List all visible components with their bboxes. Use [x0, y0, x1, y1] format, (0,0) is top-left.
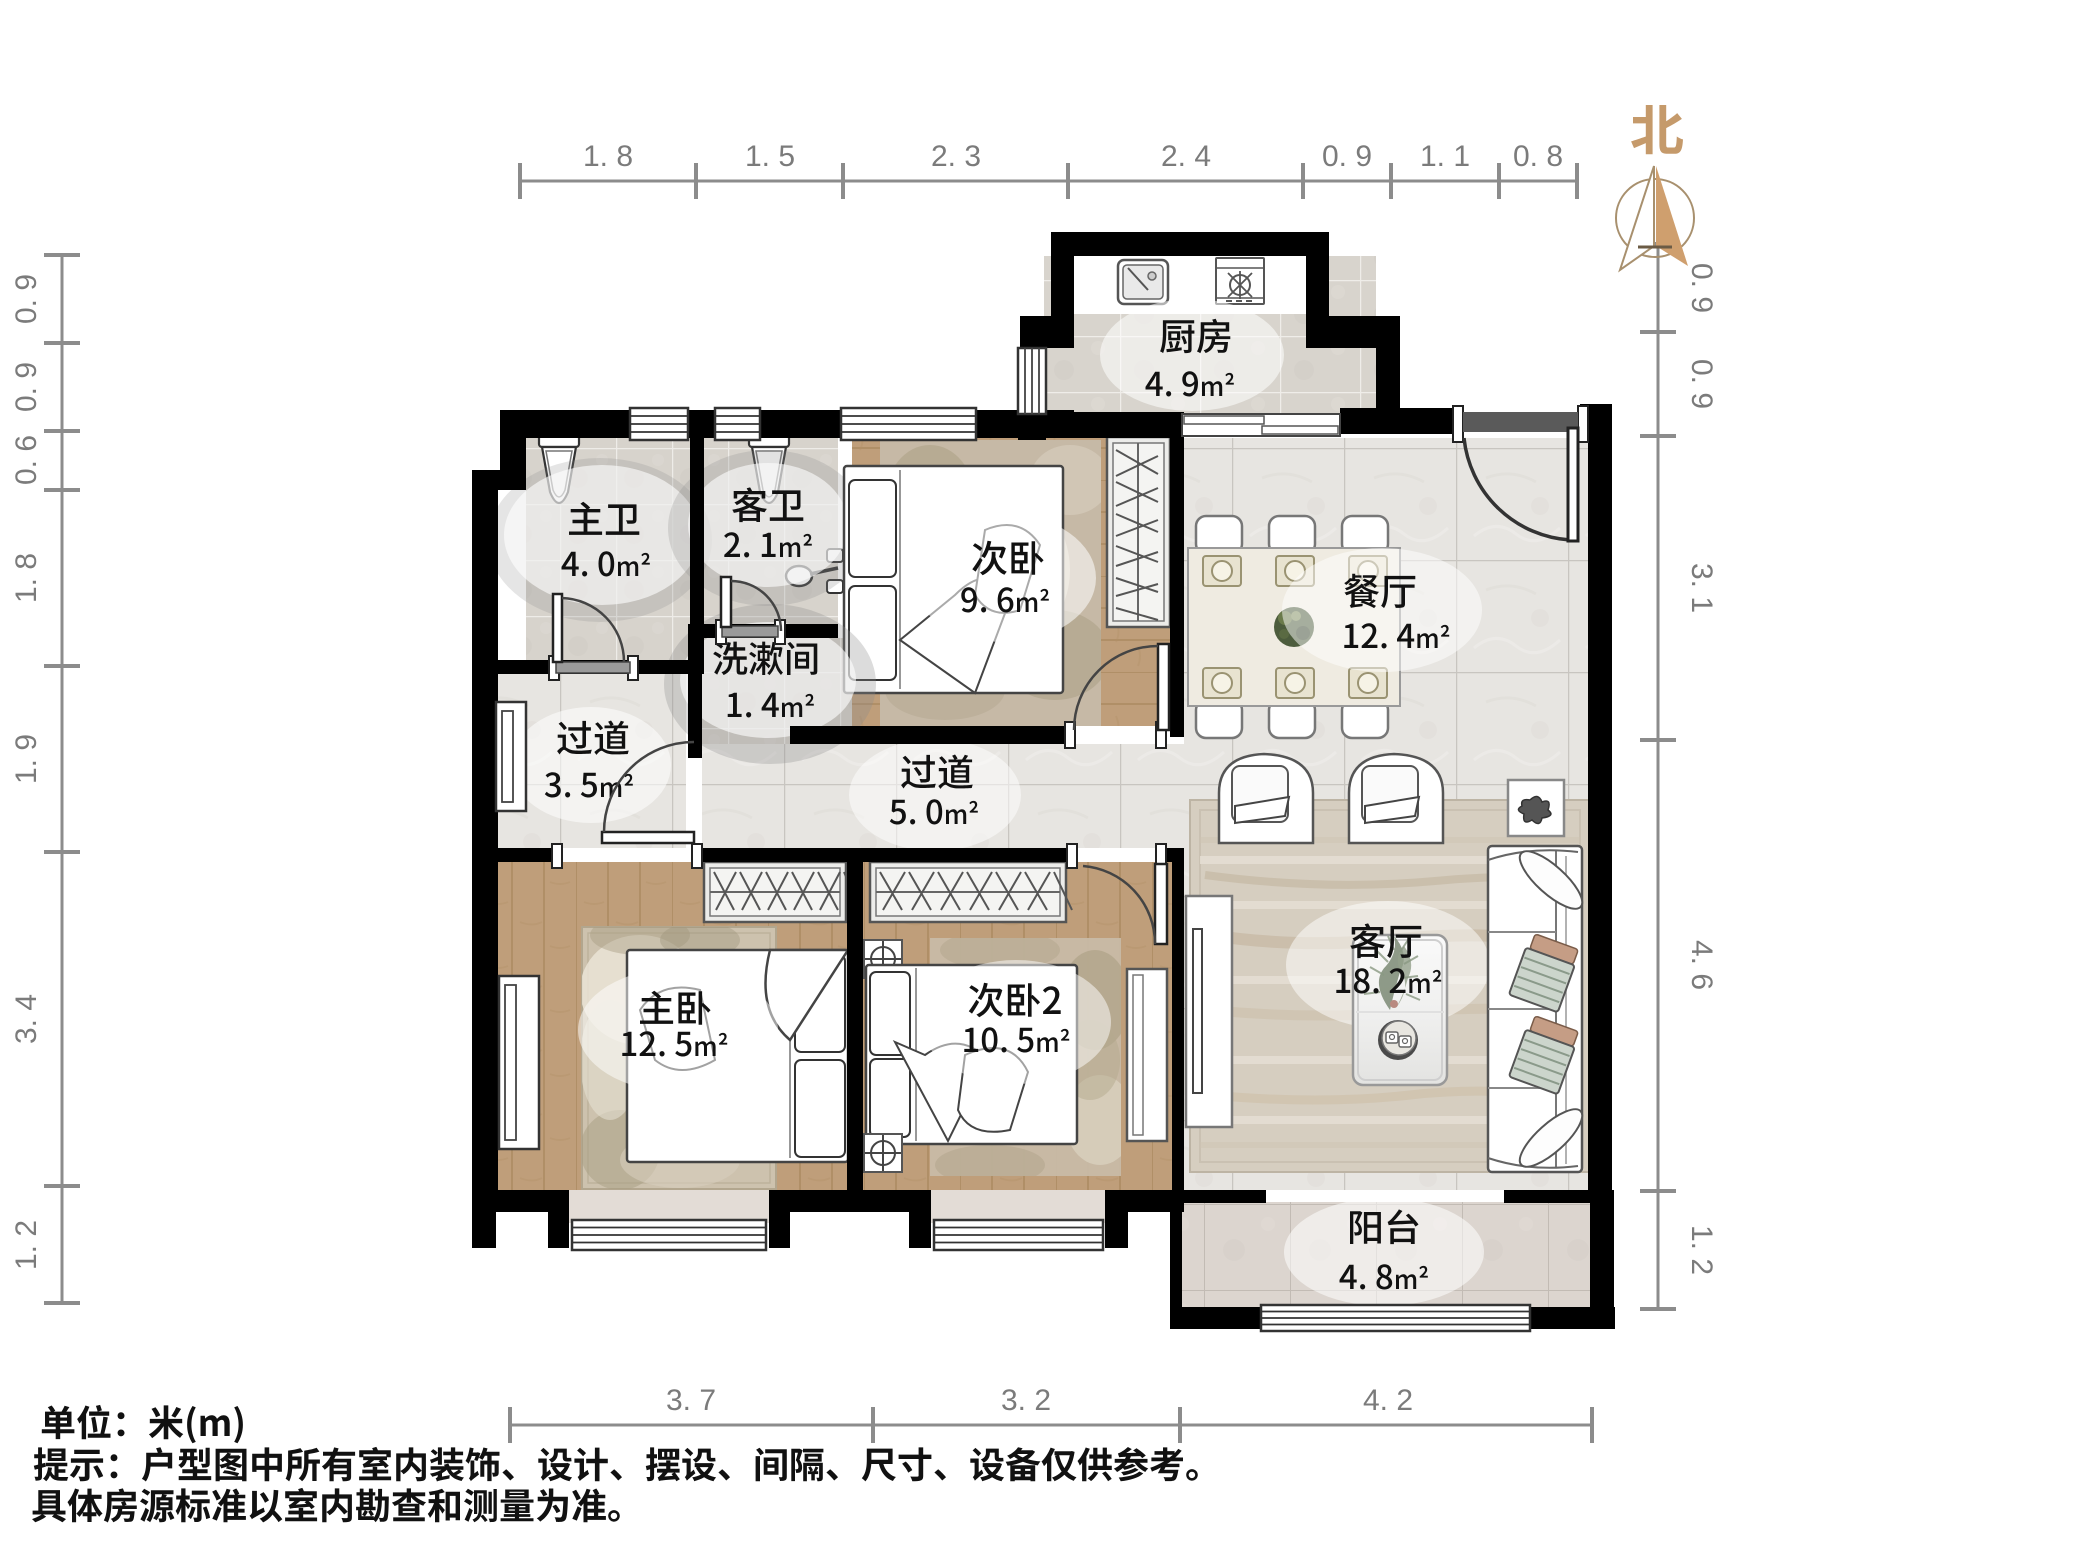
svg-text:0. 9: 0. 9 [1322, 140, 1372, 173]
svg-text:1. 5: 1. 5 [745, 140, 795, 173]
svg-text:2. 3: 2. 3 [931, 140, 981, 173]
svg-text:0. 9: 0. 9 [10, 362, 43, 412]
svg-text:1. 1: 1. 1 [1420, 140, 1470, 173]
svg-text:3. 4: 3. 4 [10, 994, 43, 1044]
svg-text:0. 8: 0. 8 [1513, 140, 1563, 173]
svg-text:1. 2: 1. 2 [10, 1220, 43, 1270]
svg-text:1. 8: 1. 8 [583, 140, 633, 173]
svg-text:1. 9: 1. 9 [10, 734, 43, 784]
svg-text:3. 2: 3. 2 [1001, 1384, 1051, 1417]
svg-text:1. 8: 1. 8 [10, 553, 43, 603]
svg-text:2. 4: 2. 4 [1161, 140, 1211, 173]
svg-text:0. 6: 0. 6 [10, 435, 43, 485]
svg-text:0. 9: 0. 9 [1685, 359, 1718, 409]
svg-text:0. 9: 0. 9 [1685, 263, 1718, 313]
svg-text:0. 9: 0. 9 [10, 274, 43, 324]
svg-text:3. 7: 3. 7 [666, 1384, 716, 1417]
svg-text:3. 1: 3. 1 [1685, 563, 1718, 613]
svg-text:4. 6: 4. 6 [1685, 940, 1718, 990]
svg-text:4. 2: 4. 2 [1363, 1384, 1413, 1417]
svg-text:1. 2: 1. 2 [1685, 1225, 1718, 1275]
